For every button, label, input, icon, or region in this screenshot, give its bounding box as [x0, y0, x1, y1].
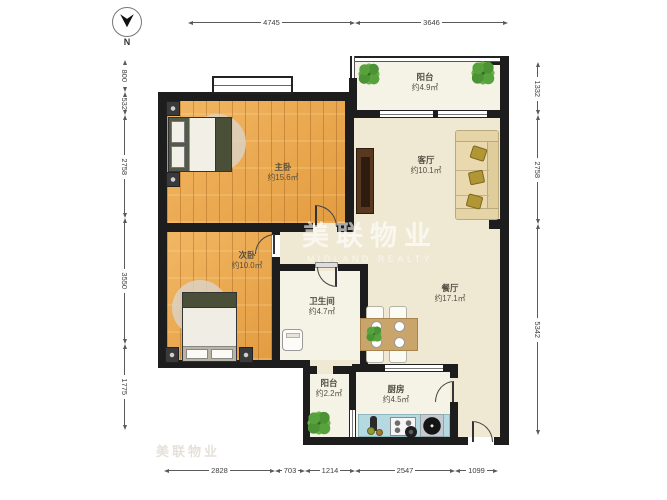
wall-living-top-2	[487, 110, 500, 118]
wall-balcony2-top-1	[310, 366, 317, 374]
room-label-kitchen: 厨房约4.5㎡	[364, 384, 428, 404]
compass	[112, 7, 142, 37]
wall-right	[500, 56, 509, 445]
dim-bottom-1214: 1214	[305, 465, 355, 476]
kitchen-bowl-1	[367, 427, 375, 435]
dim-right-2758: 2758	[532, 115, 543, 224]
kitchen-pot	[405, 426, 417, 438]
dim-bottom-2828: 2828	[164, 465, 275, 476]
bottom-balcony-plant-icon	[307, 411, 331, 435]
floor-plan: N	[0, 0, 667, 500]
sofa-pillow-2	[468, 170, 485, 186]
dim-left-2758: 2758	[119, 115, 130, 218]
second-nightstand-left	[165, 347, 179, 363]
watermark-faint: 美联物业	[156, 441, 220, 460]
second-bed-headband	[183, 293, 236, 308]
wall-master-bottom-2	[337, 223, 354, 232]
living-window-1	[380, 110, 433, 118]
dim-top-3646: 3646	[355, 17, 508, 28]
living-window-2	[438, 110, 487, 118]
sofa-pillow-1	[469, 145, 487, 162]
wall-right-pillar	[489, 219, 500, 229]
master-bay-window	[212, 76, 293, 94]
dim-bottom-2547: 2547	[355, 465, 455, 476]
dim-left-3550: 3550	[119, 218, 130, 344]
wall-second-right-2	[272, 257, 280, 368]
room-label-balcony-bottom: 阳台约2.2㎡	[297, 378, 361, 398]
second-bed-mattress	[183, 308, 236, 346]
wall-kitchen-right-1	[450, 372, 458, 378]
wall-kitchen-top-2	[443, 364, 458, 372]
sofa-armrest-top	[456, 131, 498, 142]
master-nightstand-top	[166, 101, 180, 116]
kitchen-bowl-2	[376, 429, 383, 436]
wall-master-living	[345, 100, 354, 223]
dim-top-4745: 4745	[188, 17, 355, 28]
room-label-balcony-top: 阳台约4.9㎡	[393, 72, 457, 92]
dim-bottom-703: 703	[275, 465, 305, 476]
top-balcony-plant-right-icon	[471, 61, 495, 85]
sofa-armrest-bottom	[456, 208, 498, 219]
kitchen-wok	[420, 414, 444, 437]
master-bed-mattress	[189, 118, 215, 171]
wall-master-bottom-1	[158, 223, 313, 232]
room-label-dining: 餐厅约17.1㎡	[418, 283, 482, 303]
dim-left-532: 532	[119, 92, 130, 115]
balcony2-kitchen-window	[349, 410, 356, 437]
dining-table-plant-icon	[366, 326, 382, 342]
room-label-bath: 卫生间约4.7㎡	[290, 296, 354, 316]
dim-left-1775: 1775	[119, 344, 130, 430]
sofa-backrest	[487, 131, 498, 219]
tv-cabinet	[356, 148, 374, 214]
compass-arrow-icon	[118, 12, 136, 30]
wall-bottom-1	[303, 437, 468, 445]
room-label-master: 主卧约15.6㎡	[251, 162, 315, 182]
master-bed	[168, 117, 232, 172]
wall-kitchen-right-2	[450, 402, 458, 437]
wall-kitchen-top-1	[352, 364, 385, 372]
top-balcony-plant-left-icon	[358, 63, 380, 85]
bathroom-washer	[282, 329, 303, 351]
top-balcony-railing-left	[350, 56, 355, 80]
dining-plate-2	[394, 321, 405, 332]
wall-bottom-2	[494, 437, 509, 445]
second-bed	[182, 292, 237, 362]
dim-bottom-1099: 1099	[455, 465, 498, 476]
second-nightstand-right	[239, 347, 253, 363]
second-bed-drawers	[183, 346, 236, 361]
compass-label: N	[121, 37, 133, 47]
room-label-second: 次卧约10.0㎡	[215, 250, 279, 270]
master-bed-headboard	[169, 118, 189, 171]
master-nightstand-bottom	[166, 172, 180, 187]
dim-left-800: 800	[119, 60, 130, 92]
wall-bath-top-1	[280, 264, 315, 271]
dim-right-1332: 1332	[532, 62, 543, 115]
wall-living-top-1	[354, 110, 380, 118]
kitchen-passthrough-window	[385, 364, 443, 372]
sofa	[455, 130, 499, 220]
dining-plate-4	[394, 337, 405, 348]
room-label-living: 客厅约10.1㎡	[394, 155, 458, 175]
dim-right-5342: 5342	[532, 224, 543, 435]
master-bed-footband	[215, 118, 231, 171]
